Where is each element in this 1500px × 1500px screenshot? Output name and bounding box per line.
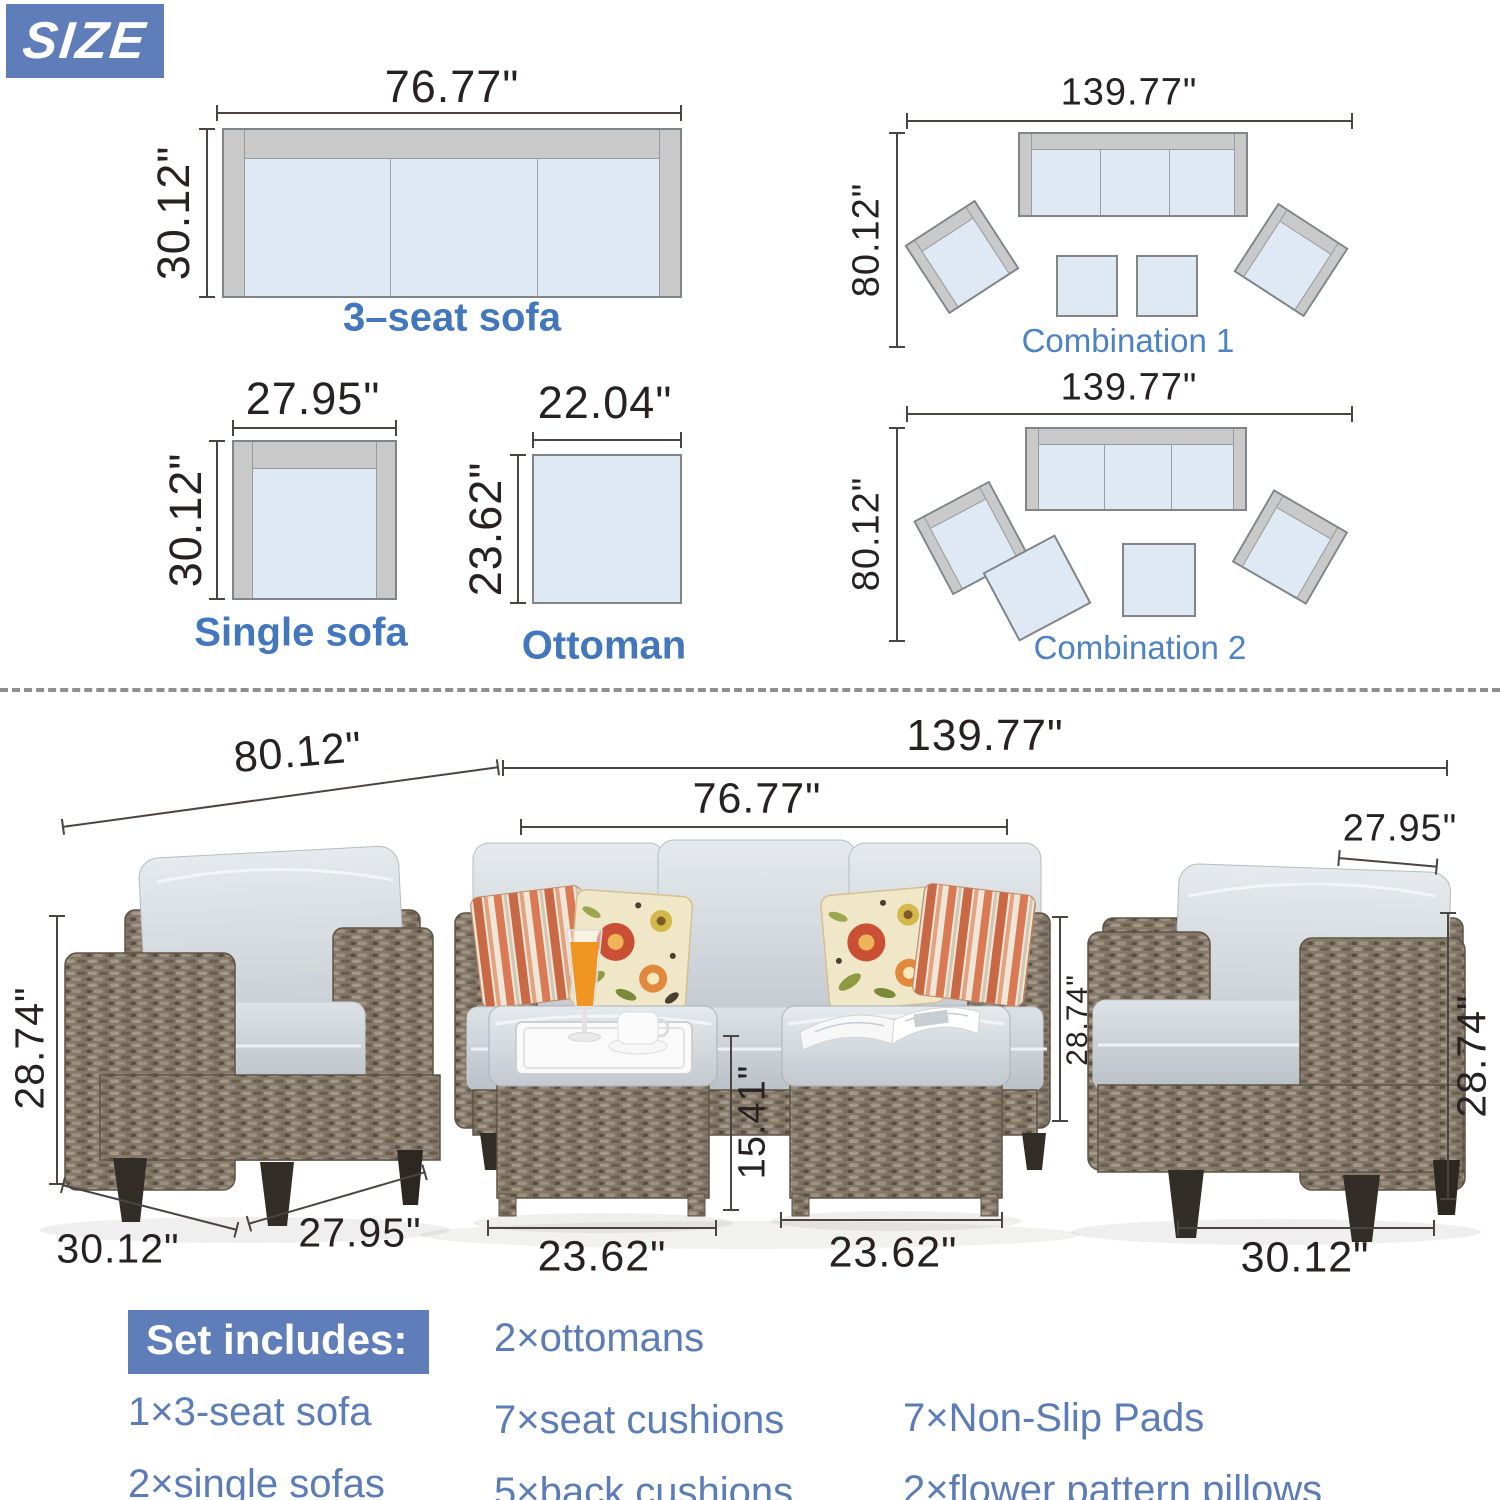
topview-3seat-sofa [222, 128, 682, 298]
combo1-sofa [1018, 132, 1248, 217]
dim-left-chair-width: 27.95" [298, 1210, 421, 1257]
dim-overall-width: 139.77" [906, 711, 1063, 761]
combo1-left-chair [904, 200, 1019, 315]
dimline-single-depth [216, 440, 218, 600]
dim-right-chair-height: 28.74" [1449, 994, 1496, 1117]
dim-ottoman-height: 15.41" [732, 1065, 775, 1180]
label-ottoman: Ottoman [522, 624, 686, 669]
right-single-sofa [1088, 863, 1465, 1242]
topview-single-sofa [232, 440, 397, 600]
label-combination-1: Combination 1 [1022, 322, 1235, 360]
dimline-3seat-width [216, 112, 682, 114]
left-single-sofa [65, 845, 440, 1226]
dim-right-chair-width-top: 27.95" [1343, 808, 1458, 851]
dimline-single-width [232, 427, 397, 429]
combo2-right-chair [1232, 489, 1348, 605]
dimline-ottoman-height [730, 1035, 732, 1211]
dim-ottoman-width: 22.04" [538, 377, 673, 429]
dim-left-chair-depth: 30.12" [56, 1226, 179, 1273]
include-item-flower-pillows: 2×flower pattern pillows [903, 1468, 1322, 1500]
set-includes-heading-label: Set includes: [146, 1316, 407, 1363]
dimline-combo1-depth [896, 132, 898, 348]
include-item-back-cushions: 5×back cushions [494, 1470, 793, 1500]
dim-ottoman-depth: 23.62" [460, 462, 512, 597]
combo2-sofa [1025, 427, 1247, 511]
dimline-3seat-depth [206, 128, 208, 298]
dimline-ottoman-width [532, 439, 682, 441]
dim-combo1-width: 139.77" [1061, 72, 1198, 115]
dimline-right-chair-height [1447, 912, 1449, 1200]
label-combination-2: Combination 2 [1034, 629, 1247, 667]
label-single-sofa: Single sofa [194, 611, 407, 656]
dim-ottoman2-width: 23.62" [829, 1229, 958, 1278]
dim-combo2-depth: 80.12" [846, 477, 889, 592]
include-item-seat-cushions: 7×seat cushions [494, 1398, 784, 1443]
label-3seat-sofa: 3–seat sofa [343, 296, 561, 341]
dim-combo1-depth: 80.12" [846, 183, 889, 298]
size-badge-label: SIZE [20, 11, 150, 71]
dim-sofa-height: 28.74" [1061, 974, 1095, 1066]
dimline-sofa-height [1059, 916, 1061, 1122]
dimline-ottoman-depth [517, 454, 519, 604]
include-item-ottomans: 2×ottomans [494, 1316, 704, 1361]
dim-3seat-depth: 30.12" [148, 146, 200, 281]
dim-combo2-width: 139.77" [1061, 367, 1198, 410]
combo1-right-chair [1233, 203, 1348, 318]
dimline-overall-width [502, 767, 1448, 769]
dimline-combo1-width [906, 120, 1353, 122]
size-infographic: SIZE 76.77" 30.12" 3–seat sofa 27.95" 30… [0, 0, 1500, 1500]
dimline-left-chair-height [56, 915, 58, 1185]
dimline-combo2-width [906, 413, 1353, 415]
dimline-right-chair-depth [1177, 1227, 1435, 1229]
size-badge: SIZE [6, 4, 164, 78]
topview-ottoman [532, 454, 682, 604]
combo1-ottoman-1 [1056, 255, 1118, 317]
dim-sofa-width: 76.77" [693, 775, 822, 824]
combo1-ottoman-2 [1136, 255, 1198, 317]
set-includes-heading: Set includes: [128, 1310, 429, 1374]
dimline-ottoman1-width [487, 1227, 717, 1229]
dimline-combo2-depth [896, 427, 898, 642]
dim-3seat-width: 76.77" [385, 61, 520, 113]
include-item-single-sofas: 2×single sofas [128, 1462, 385, 1500]
dimline-ottoman2-width [780, 1219, 1003, 1221]
dim-ottoman1-width: 23.62" [538, 1233, 667, 1282]
dimline-sofa-width [520, 826, 1008, 828]
include-item-3seat-sofa: 1×3-seat sofa [128, 1390, 372, 1435]
include-item-nonslip-pads: 7×Non-Slip Pads [903, 1396, 1204, 1441]
dim-single-width: 27.95" [246, 373, 381, 425]
dim-right-chair-depth: 30.12" [1241, 1234, 1370, 1283]
combo2-center-ottoman [1122, 543, 1196, 617]
dim-left-chair-height: 28.74" [7, 986, 54, 1109]
dim-single-depth: 30.12" [160, 453, 212, 588]
